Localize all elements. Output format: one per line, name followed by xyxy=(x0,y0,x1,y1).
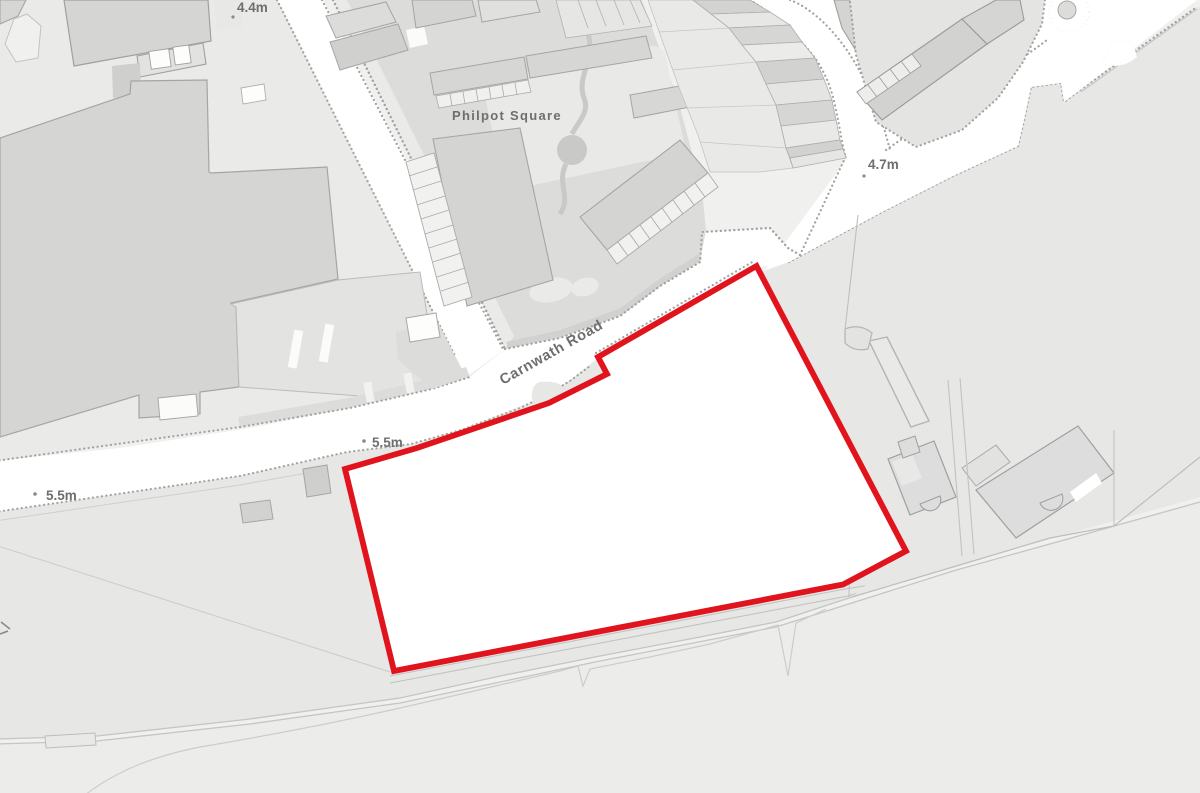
svg-text:4.7m: 4.7m xyxy=(868,157,899,172)
svg-text:Philpot Square: Philpot Square xyxy=(452,108,562,123)
svg-text:4.4m: 4.4m xyxy=(237,0,268,15)
svg-text:5.5m: 5.5m xyxy=(372,435,403,450)
svg-text:5.5m: 5.5m xyxy=(46,488,77,503)
